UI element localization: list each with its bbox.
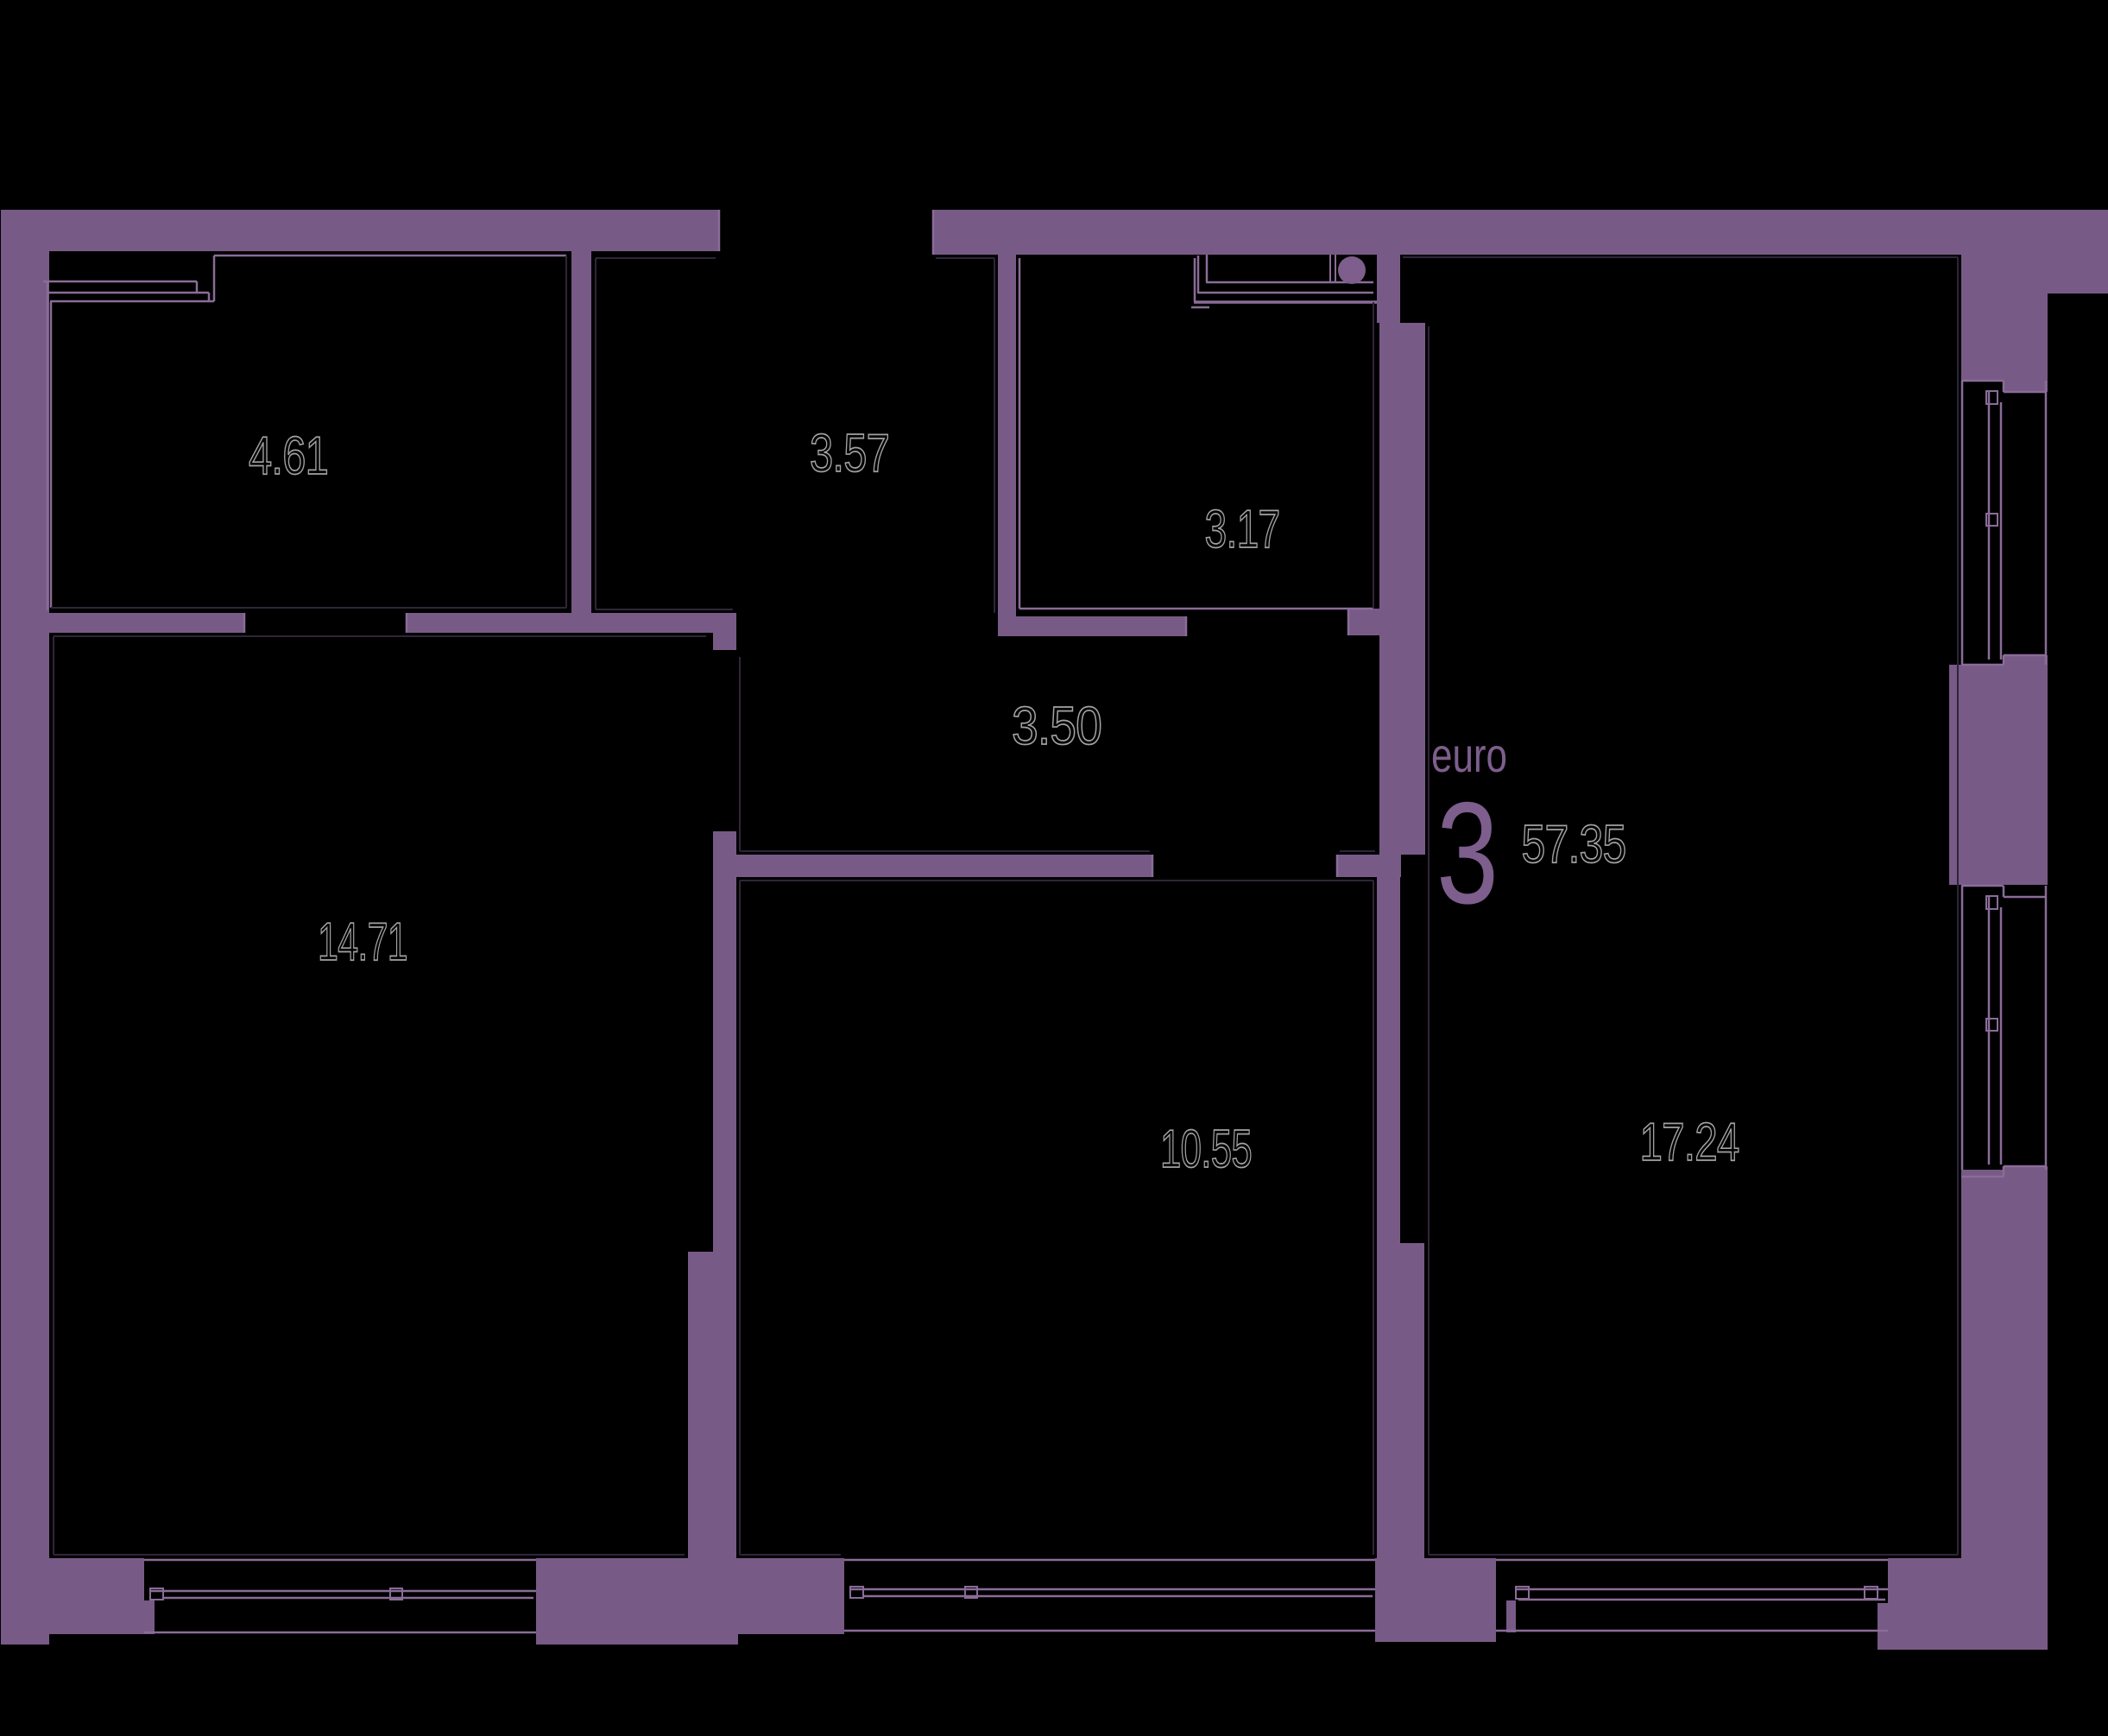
svg-text:17.24: 17.24	[1640, 1113, 1739, 1172]
svg-text:3.57: 3.57	[810, 424, 889, 483]
svg-text:3: 3	[1436, 772, 1499, 934]
svg-text:3.17: 3.17	[1205, 500, 1280, 559]
svg-text:4.61: 4.61	[249, 426, 328, 486]
svg-text:14.71: 14.71	[318, 912, 407, 972]
svg-text:57.35: 57.35	[1522, 815, 1626, 874]
svg-text:3.50: 3.50	[1012, 697, 1101, 756]
svg-text:10.55: 10.55	[1160, 1120, 1252, 1179]
